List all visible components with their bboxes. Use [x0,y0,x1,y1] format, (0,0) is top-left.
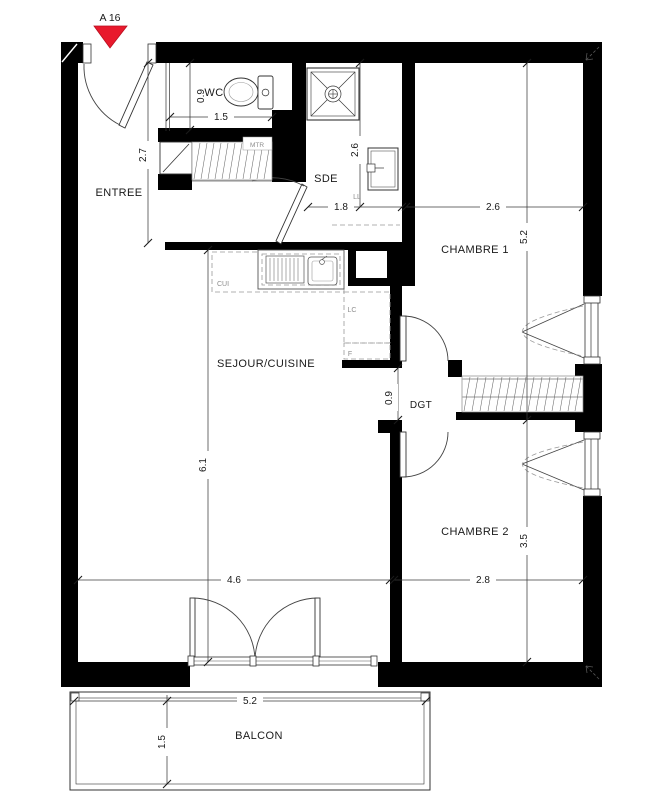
dim-chambre2-depth: 3.5 [519,534,530,548]
toilet-icon [224,76,273,109]
dgt-closet-hatch [462,376,583,412]
label-chambre1: CHAMBRE 1 [441,244,509,256]
floor-plan-page: 1.5 0.9 2.7 2.6 1.8 2.6 5.2 3.5 [0,0,668,800]
dim-sde-depth: 2.6 [350,143,361,157]
chambre2-door-leaf [400,432,406,477]
section-marker-triangle-icon [94,26,127,48]
section-marker: A 16 [94,12,127,48]
dim-chambre1-width: 2.6 [486,202,500,213]
sink-drainboard [266,256,304,283]
label-cui: CUI [217,281,229,288]
dim-chambre1-depth: 5.2 [519,230,530,244]
label-f: F [348,351,352,358]
duct-icon [160,142,192,174]
dim-chambre2-width: 2.8 [476,575,490,586]
label-dgt: DGT [410,400,432,411]
sejour-window-band [188,656,378,687]
chambre2-door-swing [403,432,448,477]
chambre1-door-swing [403,316,448,361]
entry-door-swing [84,64,120,125]
dim-entree-depth: 2.7 [138,148,149,162]
balcony-door-leaf-right [315,598,320,658]
dim-sejour-width: 4.6 [227,575,241,586]
label-lc: LC [348,307,357,314]
shower-icon [307,68,359,120]
chambre1-window [522,296,602,364]
dishwasher-zone [344,292,390,343]
dim-balcon-depth: 1.5 [157,735,168,749]
label-mtr: MTR [250,142,264,149]
label-wc: WC [204,87,223,99]
label-sde: SDE [314,173,338,185]
entry-door-jamb [83,44,91,63]
floor-plan: 1.5 0.9 2.7 2.6 1.8 2.6 5.2 3.5 [0,0,668,800]
dim-sejour-depth: 6.1 [198,458,209,472]
label-chambre2: CHAMBRE 2 [441,526,509,538]
label-sejour: SEJOUR/CUISINE [217,358,315,370]
sde-door-leaf [276,184,307,244]
label-balcon: BALCON [235,730,283,742]
section-marker-label: A 16 [99,12,120,24]
balcony-door-leaf-left [190,598,195,658]
washing-machine-icon [367,148,398,190]
dim-wc-width: 1.5 [214,112,228,123]
label-entree: ENTREE [95,187,142,199]
chambre1-door-leaf [400,316,406,361]
label-ll: LL [353,194,361,201]
dim-dgt-width: 0.9 [384,391,395,405]
dim-balcon-width: 5.2 [243,696,257,707]
walls [61,42,602,687]
sink-basin-icon [308,256,337,285]
dim-sde-width: 1.8 [334,202,348,213]
chambre2-window [522,432,602,496]
